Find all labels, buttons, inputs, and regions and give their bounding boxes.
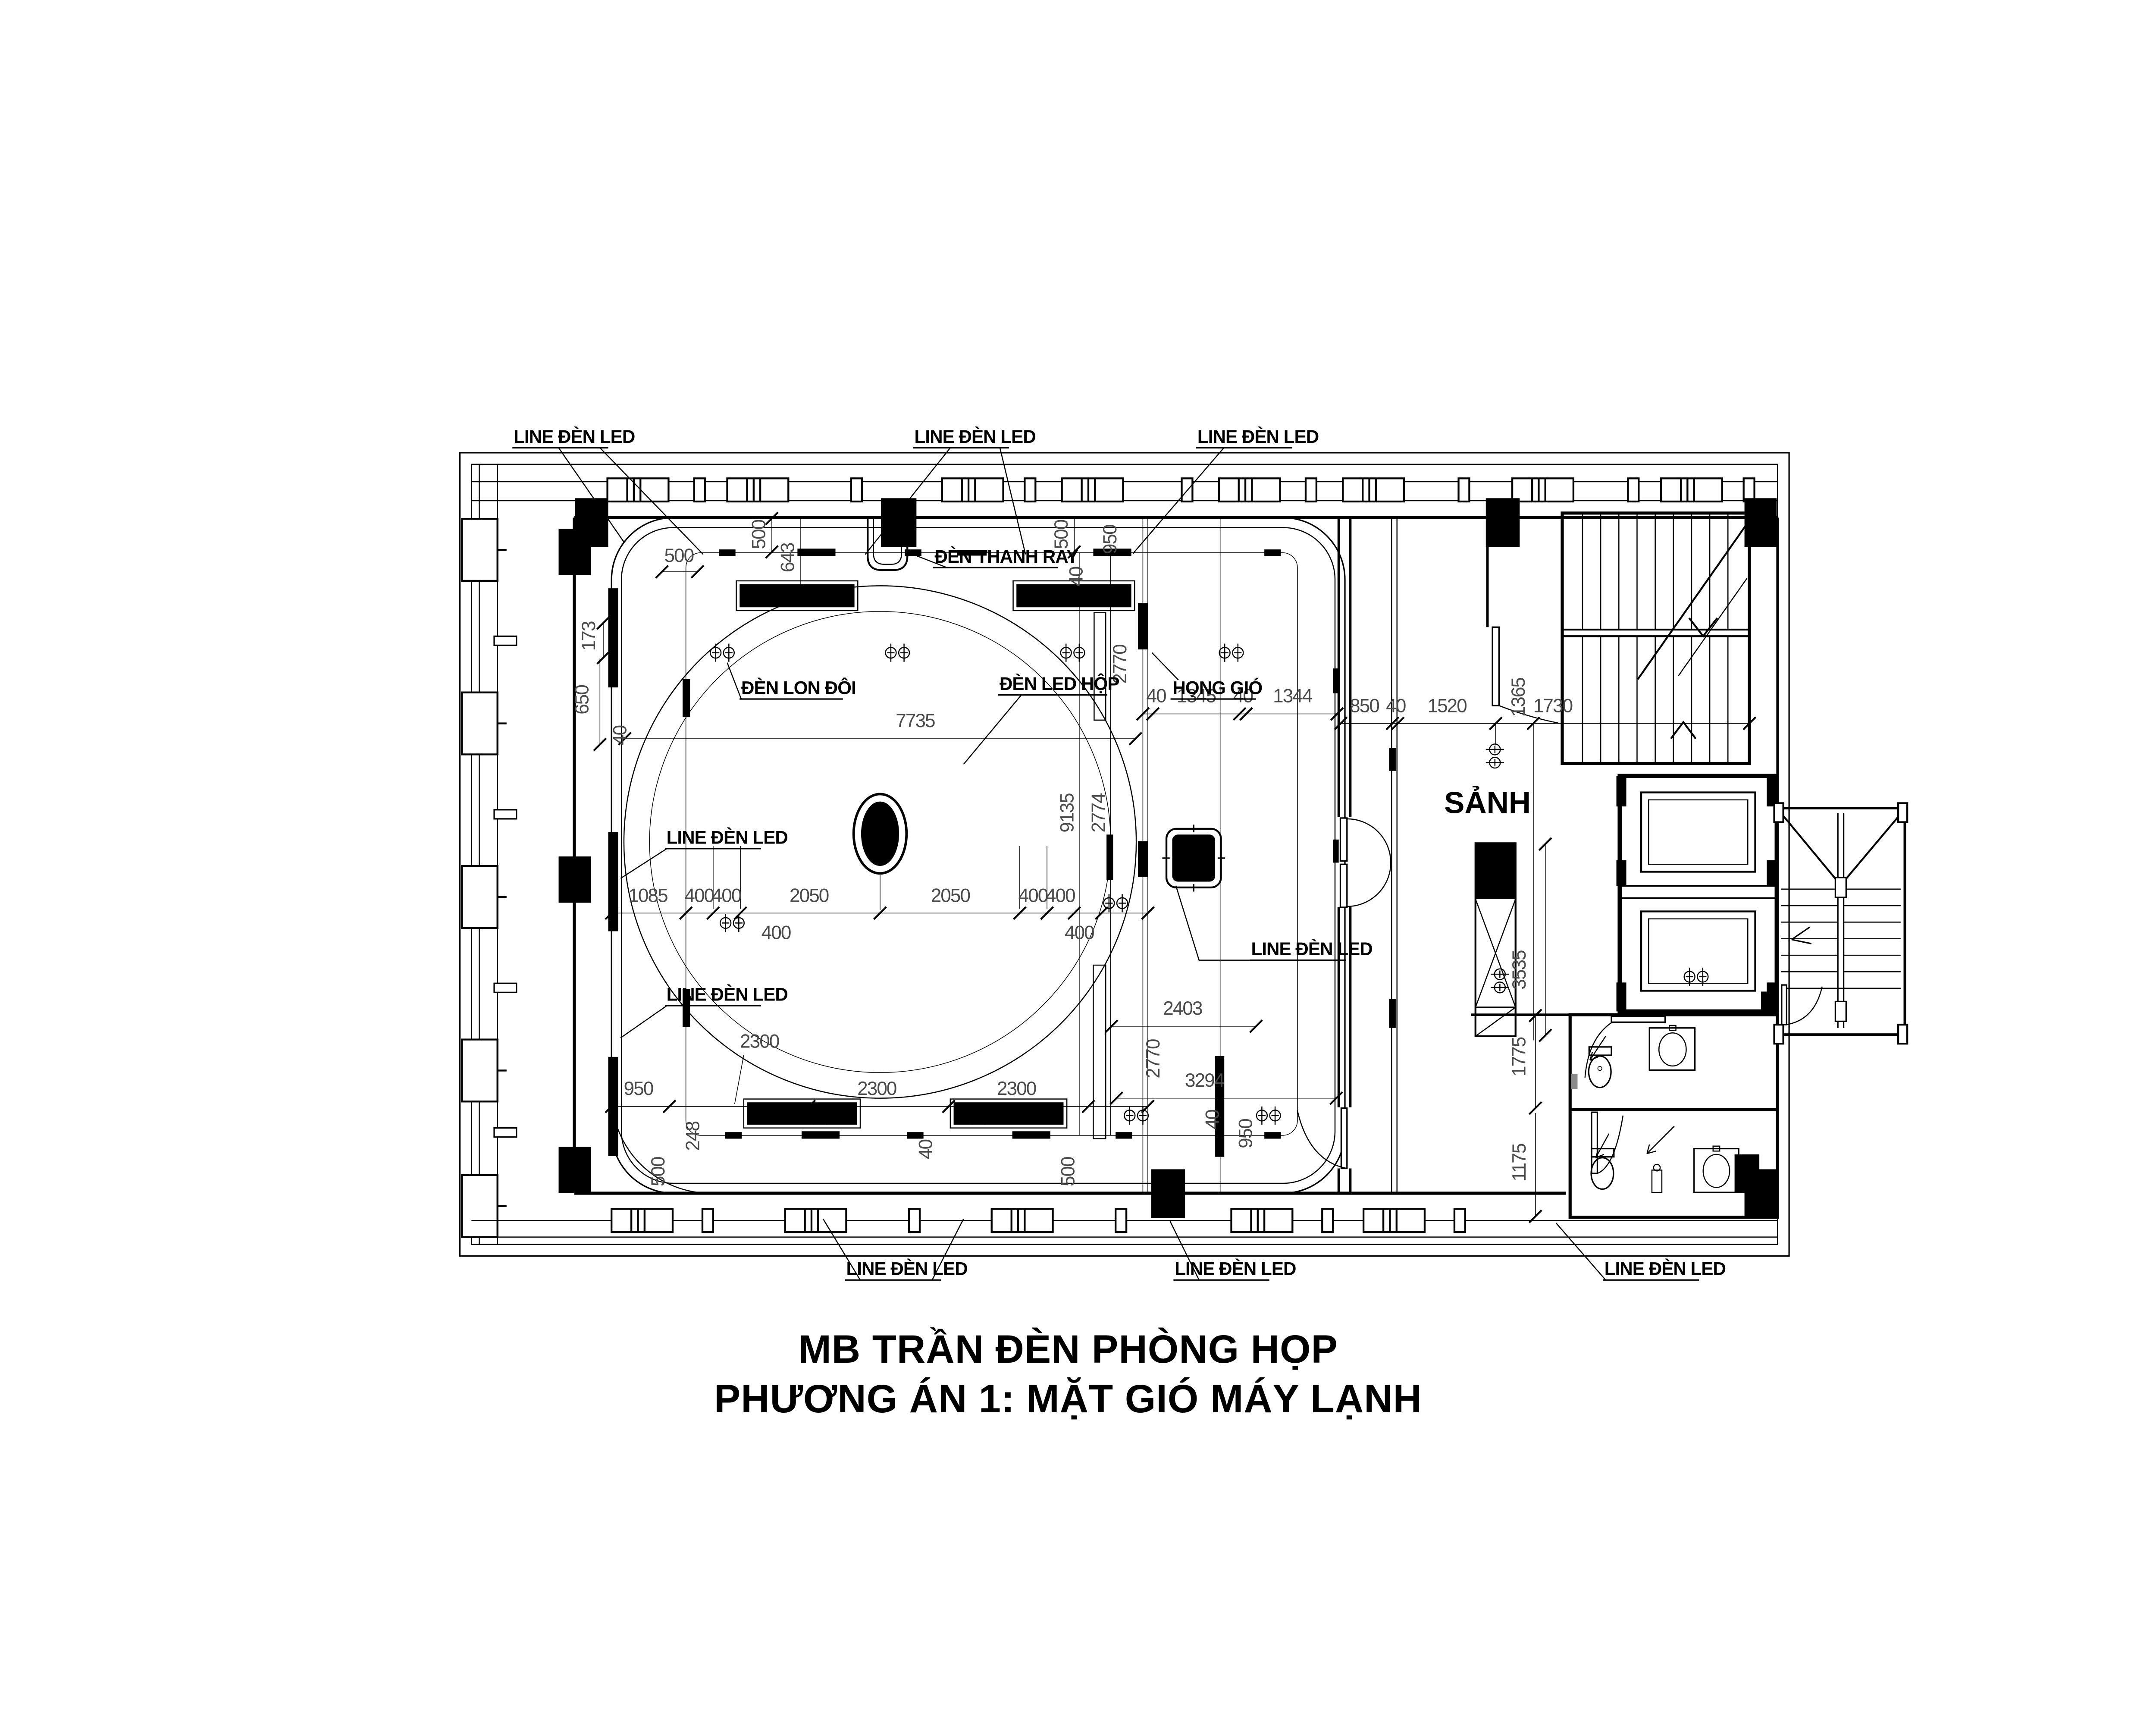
dim-text: 7735 bbox=[896, 710, 935, 731]
label-text: ĐÈN LED HỘP bbox=[1000, 673, 1119, 694]
label-text: LINE ĐÈN LED bbox=[1197, 426, 1319, 447]
label-text: LINE ĐÈN LED bbox=[1175, 1259, 1296, 1279]
dim-text: 1520 bbox=[1428, 696, 1467, 717]
dim-text: 500 bbox=[1051, 520, 1072, 549]
left-facade-band bbox=[462, 464, 591, 1245]
dim-text: 950 bbox=[1100, 525, 1121, 554]
door-swing-arc bbox=[1347, 819, 1391, 863]
dim-text: 500 bbox=[648, 1157, 669, 1186]
dim-text: 500 bbox=[749, 520, 770, 549]
drawing-title: MB TRẦN ĐÈN PHÒNG HỌP PHƯƠNG ÁN 1: MẶT G… bbox=[714, 1327, 1422, 1421]
door-leaf bbox=[1340, 864, 1347, 907]
dim-text: 500 bbox=[664, 545, 693, 566]
dim-text: 643 bbox=[777, 543, 799, 572]
dim-text: 40 bbox=[1147, 686, 1166, 707]
door-swing-arc bbox=[1786, 987, 1822, 1025]
dim-text: 40 bbox=[915, 1139, 937, 1159]
duct bbox=[1735, 1154, 1759, 1193]
double-downlight bbox=[1103, 894, 1128, 912]
label-text: LINE ĐÈN LED bbox=[915, 426, 1036, 447]
label-text: LINE ĐÈN LED bbox=[667, 827, 788, 847]
label-line-den-led-9: LINE ĐÈN LED bbox=[1556, 1223, 1726, 1280]
title-line-2: PHƯƠNG ÁN 1: MẶT GIÓ MÁY LẠNH bbox=[714, 1377, 1422, 1421]
label-text: LINE ĐÈN LED bbox=[846, 1259, 967, 1279]
label-text: LINE ĐÈN LED bbox=[1604, 1259, 1726, 1279]
dim-text: 173 bbox=[578, 621, 599, 651]
dim-text: 9135 bbox=[1056, 793, 1078, 833]
dim-text: 2300 bbox=[740, 1031, 779, 1052]
dim-text: 2050 bbox=[790, 885, 829, 906]
label-text: LINE ĐÈN LED bbox=[514, 426, 635, 447]
dim-text: 400 bbox=[1046, 885, 1075, 906]
double-downlight bbox=[1257, 1107, 1281, 1125]
dim-text: 1175 bbox=[1509, 1144, 1530, 1181]
dim-text: 400 bbox=[1018, 885, 1048, 906]
dim-text: 400 bbox=[761, 922, 791, 944]
elevator-car bbox=[1641, 793, 1755, 872]
label-text: ĐÈN THANH RAY bbox=[934, 546, 1078, 567]
label-text: LINE ĐÈN LED bbox=[1251, 939, 1372, 959]
dim-text: 950 bbox=[1235, 1119, 1256, 1148]
label-line-den-led-4: LINE ĐÈN LED bbox=[620, 827, 788, 878]
air-slot bbox=[1138, 841, 1148, 877]
dim-text: 40 bbox=[1066, 567, 1087, 586]
led-box bbox=[1093, 965, 1106, 1138]
dim-text: 1085 bbox=[628, 885, 667, 906]
dim-text: 40 bbox=[1386, 696, 1406, 717]
dim-text: 2403 bbox=[1163, 998, 1202, 1019]
label-den-lon-doi: ĐÈN LON ĐÔI bbox=[727, 663, 856, 699]
partition-wall bbox=[1297, 517, 1391, 1193]
toilet bbox=[1589, 1056, 1611, 1088]
dim-text: 2774 bbox=[1088, 793, 1109, 833]
dim-text: 2050 bbox=[931, 885, 970, 906]
label-hong-gio: HỌNG GIÓ bbox=[1152, 653, 1263, 699]
door-leaf bbox=[1611, 1016, 1665, 1022]
dim-text: 3535 bbox=[1509, 950, 1530, 990]
door-leaf bbox=[1492, 627, 1499, 706]
dim-text: 400 bbox=[712, 885, 741, 906]
door-leaf bbox=[1592, 1112, 1597, 1173]
dim-text: 1730 bbox=[1533, 696, 1573, 717]
dim-text: 3294 bbox=[1185, 1070, 1225, 1091]
floor-plan-canvas: 1085 400 400 2050 2050 400 400 400 400 7… bbox=[0, 0, 2156, 1734]
dim-text: 1344 bbox=[1273, 686, 1313, 707]
sink bbox=[1659, 1033, 1686, 1066]
sink-counter bbox=[1649, 1028, 1695, 1070]
dim-text: 650 bbox=[572, 685, 593, 715]
meeting-room-bulkhead bbox=[611, 517, 1345, 1193]
pedestal bbox=[1652, 1170, 1662, 1192]
sink bbox=[1703, 1154, 1730, 1188]
double-downlight bbox=[1486, 744, 1504, 768]
double-downlight bbox=[1061, 644, 1085, 662]
column bbox=[881, 498, 916, 547]
external-stair bbox=[1761, 803, 1907, 1044]
sink-counter bbox=[1694, 1149, 1739, 1193]
drawing-sheet: 1085 400 400 2050 2050 400 400 400 400 7… bbox=[0, 0, 2156, 1734]
dim-text: 400 bbox=[1065, 922, 1094, 944]
center-column bbox=[861, 802, 899, 866]
dim-text: 248 bbox=[682, 1121, 703, 1151]
double-downlight bbox=[720, 914, 744, 932]
door-leaf bbox=[1340, 818, 1347, 861]
double-downlight bbox=[885, 644, 909, 662]
title-line-1: MB TRẦN ĐÈN PHÒNG HỌP bbox=[798, 1327, 1338, 1371]
dim-text: 400 bbox=[684, 885, 714, 906]
label-line-den-led-5: LINE ĐÈN LED bbox=[620, 984, 788, 1038]
door-swing-arc bbox=[1347, 862, 1391, 906]
elevators bbox=[1617, 776, 1777, 1011]
door-swing-arc bbox=[1297, 1110, 1347, 1168]
column bbox=[559, 1147, 591, 1193]
dim-text: 950 bbox=[624, 1078, 653, 1099]
dim-text: 2300 bbox=[997, 1078, 1036, 1099]
door-leaf bbox=[1782, 985, 1786, 1025]
dim-text: 500 bbox=[1057, 1157, 1078, 1186]
dim-text: 850 bbox=[1350, 696, 1379, 717]
air-slot bbox=[1138, 603, 1148, 649]
column bbox=[559, 529, 591, 575]
dim-text: 2770 bbox=[1143, 1039, 1164, 1079]
ac-diffuser bbox=[1162, 825, 1225, 891]
label-text: ĐÈN LON ĐÔI bbox=[741, 677, 856, 698]
staircase bbox=[1562, 513, 1749, 764]
label-den-thanh-ray: ĐÈN THANH RAY bbox=[917, 546, 1078, 568]
double-downlight bbox=[1219, 644, 1244, 662]
label-text: HỌNG GIÓ bbox=[1172, 677, 1262, 698]
room-name-sanh: SẢNH bbox=[1444, 786, 1531, 820]
column bbox=[1486, 498, 1520, 547]
dim-text: 1775 bbox=[1509, 1037, 1530, 1076]
label-text: LINE ĐÈN LED bbox=[667, 984, 788, 1004]
label-den-led-hop: ĐÈN LED HỘP bbox=[964, 673, 1119, 764]
column bbox=[559, 856, 591, 903]
dim-text: 2300 bbox=[857, 1078, 896, 1099]
air-slot bbox=[1106, 834, 1113, 880]
dim-text: 40 bbox=[1202, 1110, 1223, 1129]
door-swing-arc bbox=[1597, 1116, 1623, 1173]
door-leaf bbox=[1341, 1108, 1347, 1169]
dim-text: 40 bbox=[610, 725, 631, 745]
dim-text: 1365 bbox=[1508, 678, 1529, 717]
